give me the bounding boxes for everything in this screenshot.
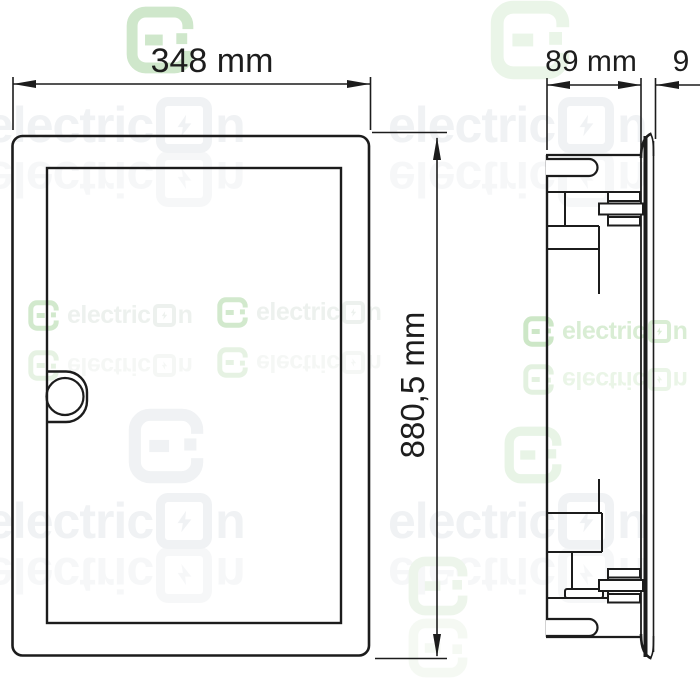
clip-assembly-top <box>546 192 643 294</box>
door-lock <box>47 378 84 415</box>
technical-drawing-page: electric n electric n electric n electri… <box>0 0 700 700</box>
enclosure-door <box>47 168 341 623</box>
side-gap-dimension-label: 9 <box>659 45 700 79</box>
side-depth-dimension-label: 89 mm <box>521 45 661 79</box>
front-height-dimension-label: 880,5 mm <box>393 305 433 465</box>
arrowhead <box>656 81 679 89</box>
enclosure-outer-frame <box>13 136 370 656</box>
dimension-lines-side <box>547 78 700 151</box>
mount-slot-bottom <box>546 619 598 636</box>
arrowhead <box>13 80 36 88</box>
arrowhead <box>433 634 441 657</box>
dimension-lines-front <box>13 77 447 659</box>
side-view <box>546 134 654 659</box>
clip-assembly-bottom <box>546 479 643 603</box>
arrowhead <box>618 81 641 89</box>
front-view <box>13 136 370 656</box>
front-width-dimension-label: 348 mm <box>132 42 292 81</box>
arrowhead <box>547 81 570 89</box>
arrowhead <box>433 137 441 160</box>
arrowhead <box>347 80 370 88</box>
enclosure-drawing <box>0 0 700 700</box>
mount-slot-top <box>546 159 598 176</box>
